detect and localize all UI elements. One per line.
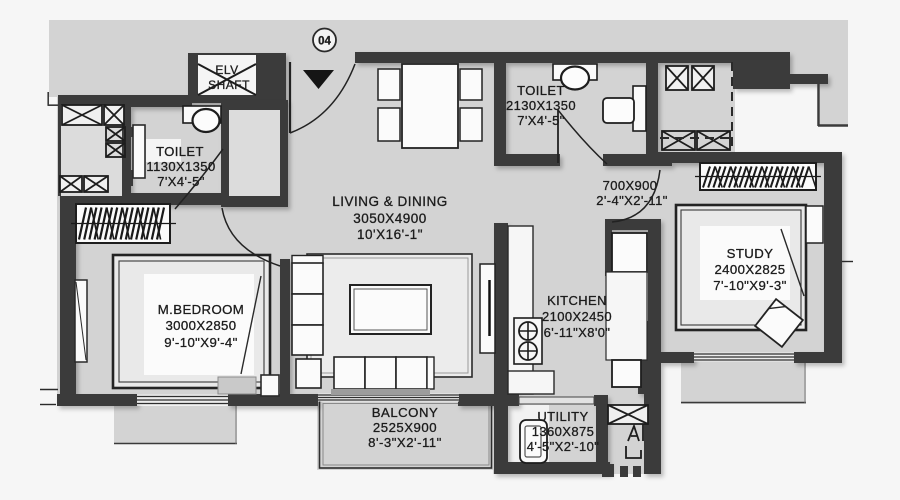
svg-text:STUDY: STUDY — [727, 246, 774, 261]
svg-text:8'-3"X2'-11": 8'-3"X2'-11" — [368, 435, 442, 450]
svg-text:TOILET: TOILET — [156, 144, 204, 159]
svg-text:4'-5"X2'-10": 4'-5"X2'-10" — [527, 439, 599, 454]
svg-text:7'X4'-5": 7'X4'-5" — [157, 174, 204, 189]
svg-text:KITCHEN: KITCHEN — [547, 293, 607, 308]
svg-text:6'-11"X8'0": 6'-11"X8'0" — [544, 325, 611, 340]
svg-text:10'X16'-1": 10'X16'-1" — [357, 227, 423, 242]
svg-text:700X900: 700X900 — [603, 178, 658, 193]
svg-text:1360X875: 1360X875 — [532, 424, 594, 439]
svg-text:2130X1350: 2130X1350 — [506, 98, 576, 113]
svg-text:2'-4"X2'-11": 2'-4"X2'-11" — [596, 193, 668, 208]
svg-text:7'-10"X9'-3": 7'-10"X9'-3" — [713, 278, 786, 293]
svg-text:TOILET: TOILET — [517, 83, 565, 98]
svg-text:1130X1350: 1130X1350 — [146, 159, 215, 174]
svg-text:9'-10"X9'-4": 9'-10"X9'-4" — [164, 335, 237, 350]
svg-text:UTILITY: UTILITY — [537, 409, 588, 424]
svg-text:M.BEDROOM: M.BEDROOM — [158, 302, 244, 317]
svg-text:2400X2825: 2400X2825 — [714, 262, 785, 277]
svg-text:3050X4900: 3050X4900 — [353, 211, 427, 226]
svg-text:BALCONY: BALCONY — [372, 405, 439, 420]
svg-text:2525X900: 2525X900 — [373, 420, 437, 435]
svg-text:04: 04 — [318, 36, 331, 48]
svg-text:3000X2850: 3000X2850 — [165, 318, 236, 333]
svg-text:SHAFT: SHAFT — [208, 78, 250, 92]
svg-text:2100X2450: 2100X2450 — [542, 309, 612, 324]
svg-text:ELV: ELV — [215, 63, 238, 77]
svg-text:7'X4'-5": 7'X4'-5" — [517, 113, 564, 128]
svg-text:LIVING & DINING: LIVING & DINING — [332, 194, 448, 209]
